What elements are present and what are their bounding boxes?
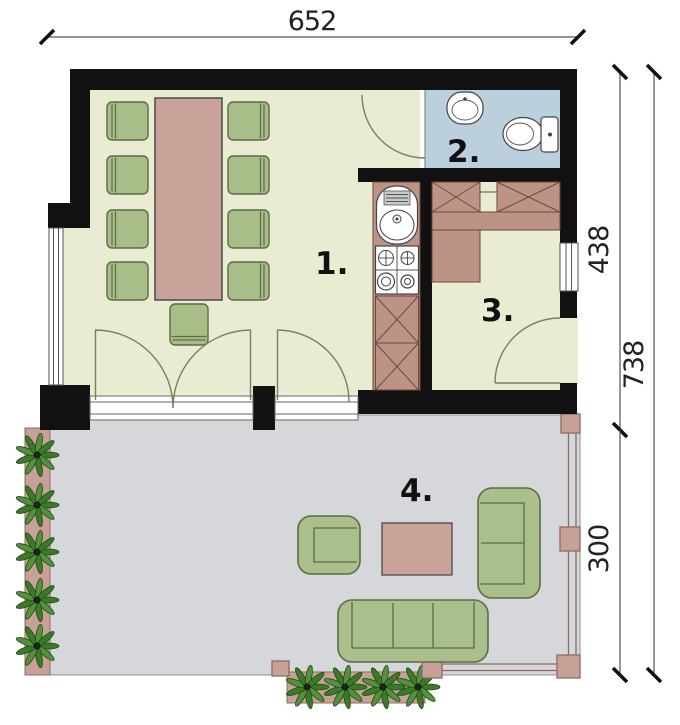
chair: [228, 210, 269, 248]
single-door-threshold: [275, 396, 358, 420]
chair: [107, 210, 148, 248]
chair: [107, 156, 148, 194]
wall-top: [70, 69, 577, 90]
top-width-dimension: 652: [40, 6, 585, 44]
kitchen-sink: [377, 186, 418, 244]
coffee-table: [382, 523, 452, 575]
chair: [228, 102, 269, 140]
room3-label: 3.: [481, 293, 514, 329]
terrace-height-dimension: 300: [584, 430, 627, 682]
chair: [170, 304, 208, 345]
left-planter-plants: [15, 433, 59, 668]
wall-bathroom-bottom: [358, 168, 577, 182]
wall-hall-divider: [420, 168, 432, 390]
room2-label: 2.: [447, 134, 480, 170]
left-window: [49, 228, 63, 385]
wall-bottom-right: [358, 390, 577, 414]
chair: [228, 262, 269, 300]
floor-plan-drawing: 1. 2. 3. 4. 652 438 300 738: [0, 0, 680, 725]
wall-right-mid: [560, 291, 577, 318]
right-window: [560, 243, 578, 291]
total-height-label: 738: [619, 341, 650, 390]
wall-pier: [253, 386, 275, 430]
dining-table: [155, 98, 222, 300]
top-width-label: 652: [288, 6, 337, 37]
upper-height-label: 438: [584, 226, 615, 275]
wall-left-step: [48, 203, 90, 228]
sofa-two-seat: [478, 488, 540, 598]
armchair: [298, 516, 360, 574]
floor-plan-page: 1. 2. 3. 4. 652 438 300 738: [0, 0, 680, 725]
sofa-three-seat: [338, 600, 488, 662]
washbasin: [447, 92, 483, 124]
chair: [107, 102, 148, 140]
total-height-dimension: 738: [619, 65, 661, 682]
terrace-height-label: 300: [584, 525, 615, 574]
chair: [228, 156, 269, 194]
wall-left-upper: [70, 69, 90, 205]
wall-right-upper: [560, 69, 577, 243]
wall-left-lower: [40, 385, 90, 430]
kitchen-cabinet: [376, 296, 419, 390]
toilet: [503, 117, 558, 152]
french-door-threshold: [90, 396, 253, 420]
kitchen-stove: [376, 246, 419, 294]
room4-label: 4.: [400, 473, 433, 509]
room1-label: 1.: [315, 246, 348, 282]
wall-right-lower: [560, 383, 577, 414]
chair: [107, 262, 148, 300]
